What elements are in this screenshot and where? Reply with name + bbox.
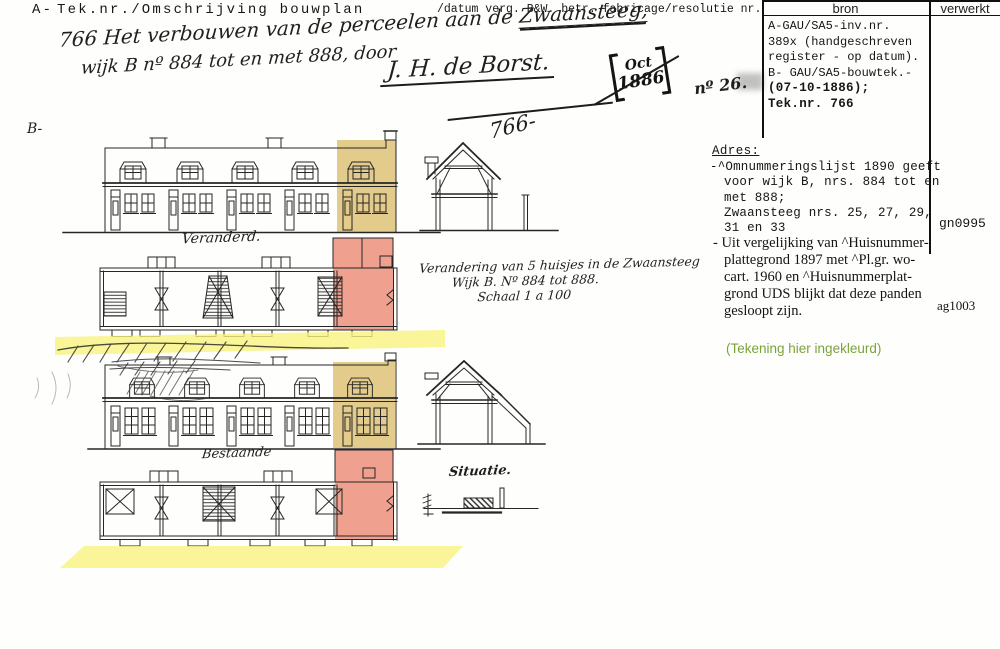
site-plan (423, 488, 538, 516)
roof-scribble (118, 366, 208, 401)
floorplan-changed (100, 238, 397, 337)
building-plan-drawing (0, 110, 700, 649)
margin-scribble (35, 372, 70, 404)
caption-veranderd: Veranderd. (181, 229, 262, 248)
demolition-note: - Uit vergelijking van ^Huisnummer- plat… (713, 235, 929, 320)
highlight-red-existing (335, 450, 393, 540)
code-gn0995: gn0995 (939, 216, 986, 231)
column-header-bron: bron (762, 1, 929, 16)
archive-card: A- Tek.nr./Omschrijving bouwplan /datum … (0, 0, 1000, 649)
bron-cell: A-GAU/SA5-inv.nr. 389x (handgeschreven r… (768, 19, 919, 113)
colored-drawing-note: (Tekening hier ingekleurd) (726, 341, 881, 356)
section-a-label: A- (32, 2, 53, 18)
elevation-changed (63, 131, 440, 233)
caption-bestaande: Bestaande (201, 445, 272, 462)
renumbering-note: -^Omnummeringslijst 1890 geeft voor wijk… (710, 160, 941, 236)
street-name-underlined: Zwaansteeg, (519, 0, 649, 29)
adres-heading: Adres: (712, 144, 759, 158)
column-header-verwerkt: verwerkt (930, 1, 1000, 16)
caption-situatie: Situatie. (448, 463, 512, 480)
highlight-yellow-top (55, 330, 445, 355)
code-ag1003: ag1003 (937, 298, 975, 314)
table-left-border (762, 0, 764, 138)
stamp-number: nº 26. (693, 73, 748, 98)
drawing-title-block: Verandering van 5 huisjes in de Zwaanste… (416, 255, 634, 306)
highlight-yellow-bottom (60, 546, 463, 568)
architect-signature: J. H. de Borst. (380, 49, 556, 87)
cross-section-changed (420, 143, 558, 231)
cross-section-existing (418, 361, 545, 444)
floorplan-existing (100, 450, 397, 546)
